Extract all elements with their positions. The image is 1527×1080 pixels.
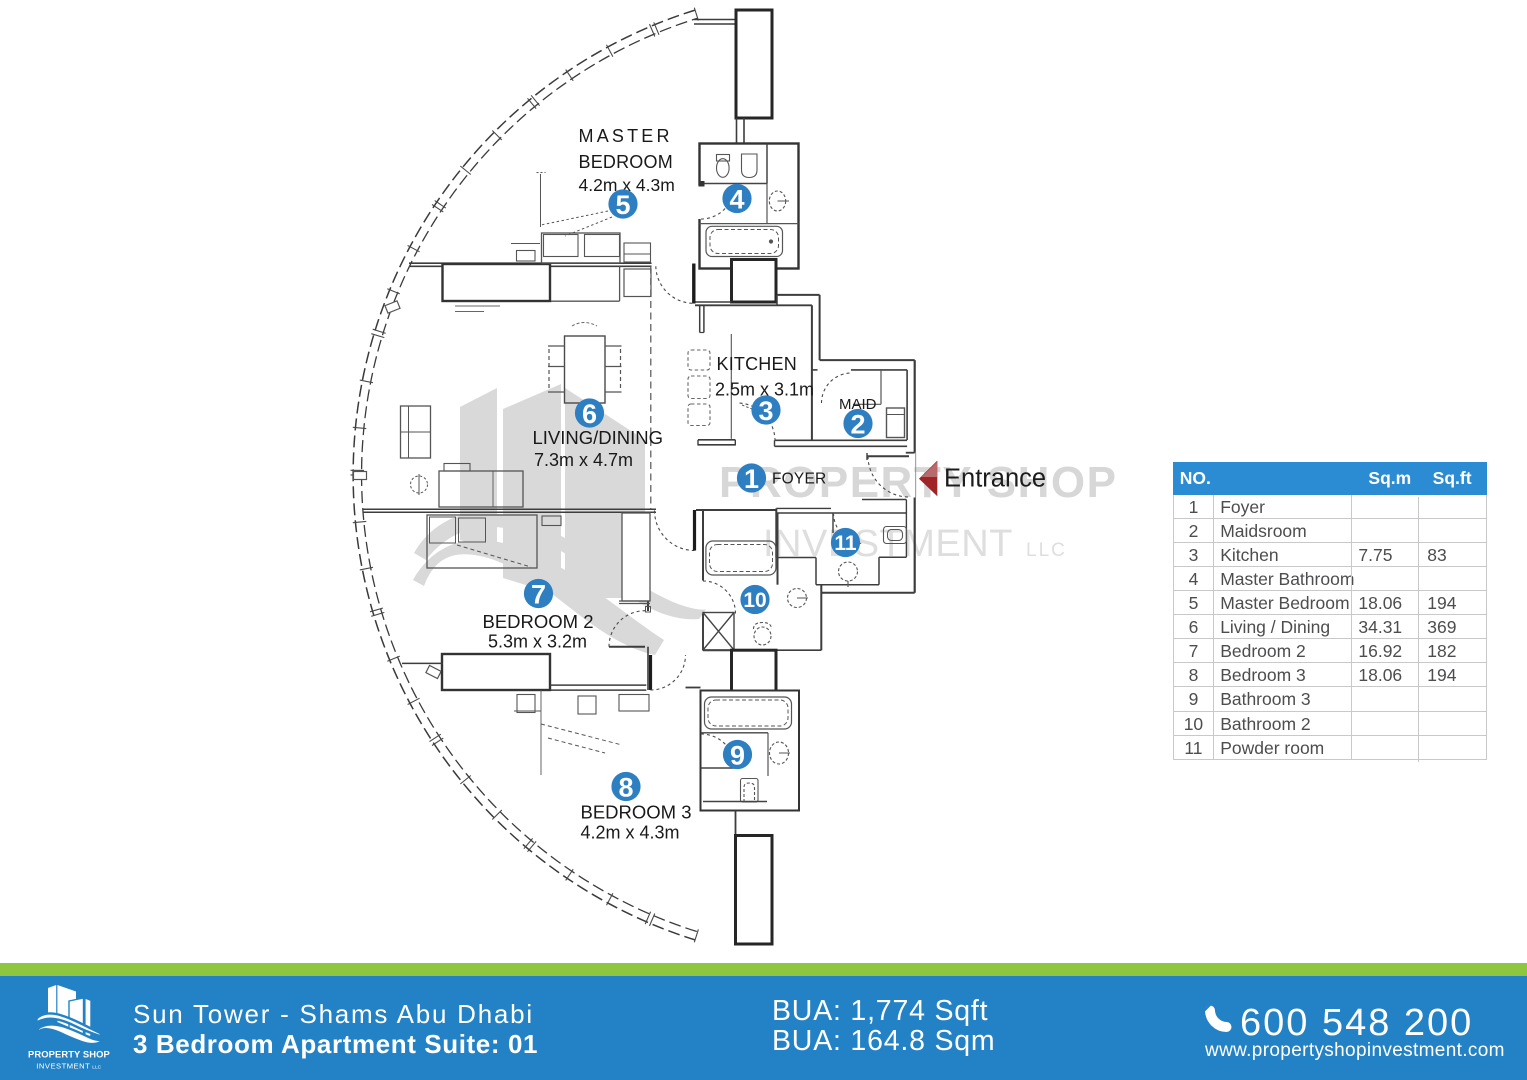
svg-text:3: 3	[758, 396, 773, 426]
svg-text:MASTER: MASTER	[579, 126, 673, 146]
svg-text:5.3m x 3.2m: 5.3m x 3.2m	[488, 632, 587, 652]
svg-text:8: 8	[618, 772, 633, 802]
svg-text:INVESTMENT: INVESTMENT	[36, 1061, 90, 1070]
svg-text:2: 2	[850, 409, 865, 439]
svg-text:5: 5	[615, 190, 630, 220]
svg-text:11: 11	[834, 532, 857, 555]
svg-text:PROPERTY SHOP: PROPERTY SHOP	[28, 1049, 110, 1060]
svg-text:1: 1	[744, 464, 759, 494]
svg-text:7: 7	[531, 579, 546, 609]
svg-text:BEDROOM 3: BEDROOM 3	[581, 802, 692, 823]
svg-text:FOYER: FOYER	[772, 471, 826, 488]
svg-text:LLC: LLC	[92, 1064, 101, 1070]
svg-text:4: 4	[729, 184, 744, 214]
svg-text:10: 10	[743, 589, 766, 612]
svg-text:BEDROOM 2: BEDROOM 2	[483, 611, 594, 632]
svg-text:9: 9	[730, 740, 745, 770]
svg-text:7.3m x 4.7m: 7.3m x 4.7m	[534, 450, 633, 470]
svg-text:4.2m x 4.3m: 4.2m x 4.3m	[581, 823, 680, 843]
svg-text:KITCHEN: KITCHEN	[717, 354, 797, 374]
svg-text:6: 6	[582, 399, 597, 429]
svg-text:LIVING/DINING: LIVING/DINING	[533, 427, 664, 448]
svg-text:BEDROOM: BEDROOM	[579, 152, 673, 172]
svg-text:Entrance: Entrance	[944, 465, 1046, 493]
svg-text:LLC: LLC	[1026, 540, 1067, 561]
